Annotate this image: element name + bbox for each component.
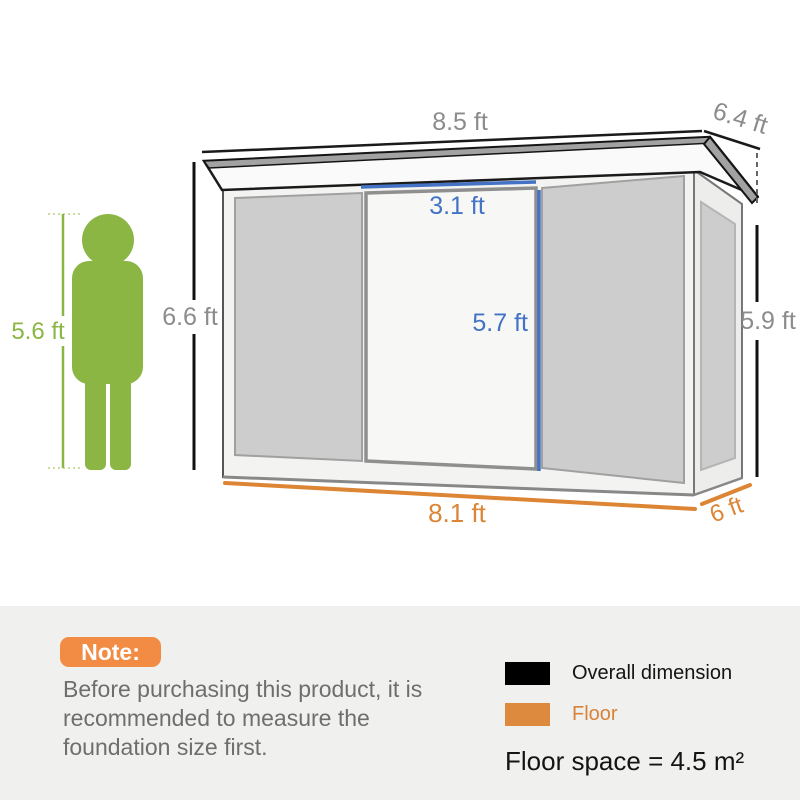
person-height-label: 5.6 ft (11, 318, 65, 345)
note-badge: Note: (60, 637, 161, 667)
note-section: Note: Before purchasing this product, it… (0, 606, 800, 800)
shed-right-panel (542, 176, 684, 483)
person-left-leg (85, 370, 106, 470)
overall-dimension-legend-label: Overall dimension (572, 662, 732, 685)
shed-left-panel (235, 193, 362, 461)
legend: Overall dimension Floor (505, 662, 795, 744)
front-height-label: 6.6 ft (162, 303, 218, 331)
floor-width-label: 8.1 ft (428, 498, 487, 528)
legend-row-floor: Floor (505, 703, 795, 726)
roof-depth-label: 6.4 ft (710, 97, 771, 140)
floor-legend-label: Floor (572, 703, 618, 726)
door-height-label: 5.7 ft (472, 309, 528, 337)
person-figure (72, 214, 143, 470)
floor-depth-label: 6 ft (706, 491, 747, 528)
overall-dimension-swatch (505, 662, 550, 685)
note-text: Before purchasing this product, it is re… (63, 675, 453, 762)
rear-height-label: 5.9 ft (740, 307, 796, 335)
person-torso (72, 261, 143, 384)
floor-swatch (505, 703, 550, 726)
roof-width-label: 8.5 ft (432, 108, 488, 136)
person-right-leg (110, 370, 131, 470)
floor-space-text: Floor space = 4.5 m² (505, 746, 744, 777)
person-scale-group: 5.6 ft (11, 214, 143, 470)
person-head (82, 214, 134, 266)
product-dimension-image: 5.6 ft (0, 0, 800, 800)
shed-dimension-diagram: 5.6 ft (0, 0, 800, 605)
shed-side-panel (701, 202, 735, 470)
door-width-label: 3.1 ft (429, 192, 485, 220)
legend-row-overall-dimension: Overall dimension (505, 662, 795, 685)
